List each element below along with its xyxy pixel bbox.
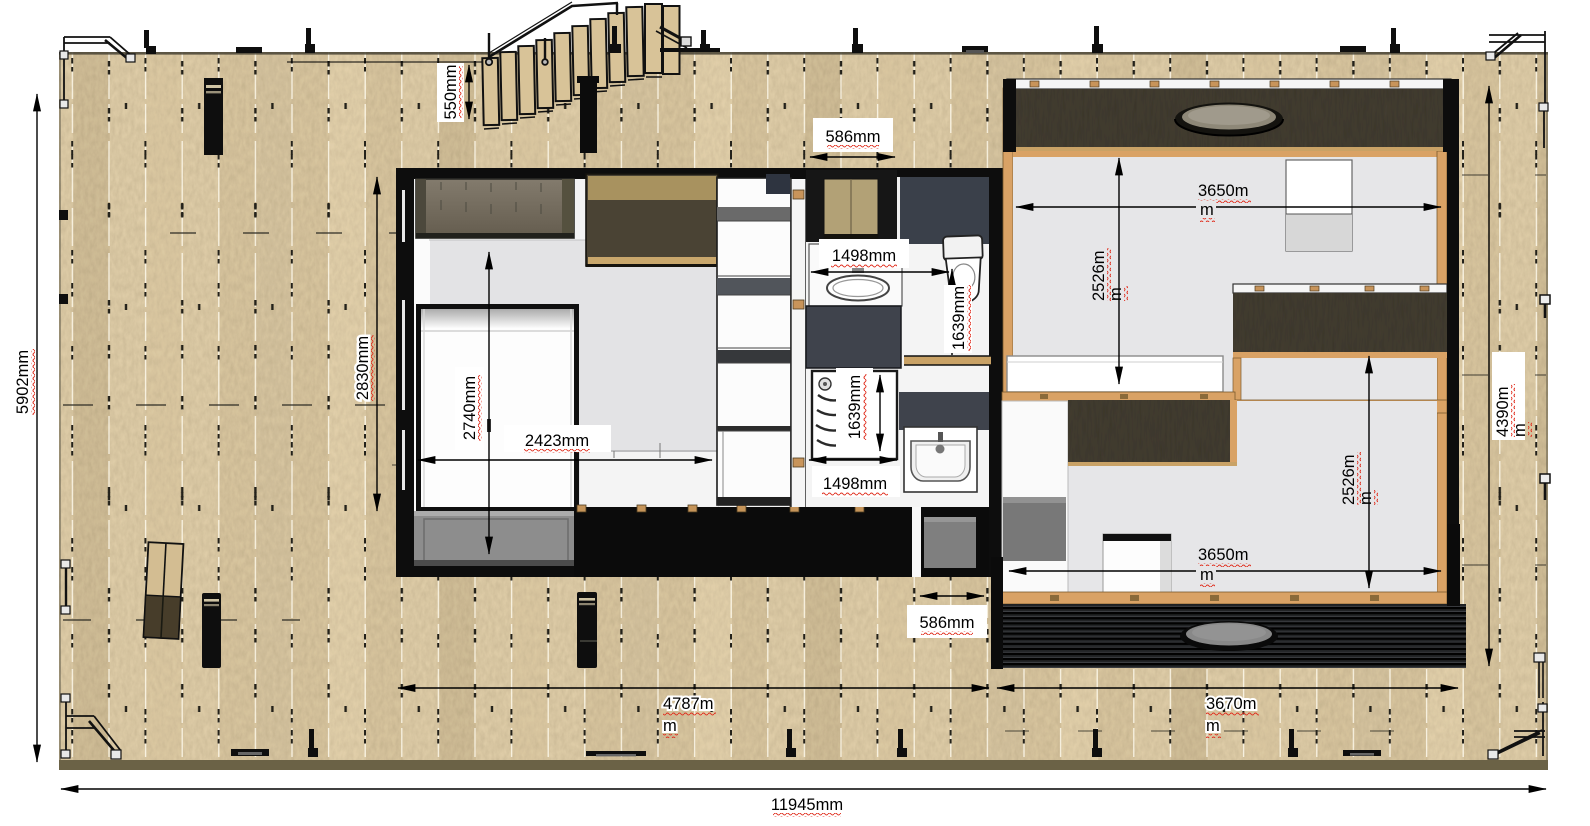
svg-text:m: m [1511,423,1529,437]
svg-text:550mm: 550mm [442,64,460,119]
svg-text:m: m [1200,201,1214,219]
svg-text:m: m [663,717,677,735]
svg-text:3650m: 3650m [1198,182,1248,200]
svg-text:1498mm: 1498mm [832,247,896,265]
svg-text:2423mm: 2423mm [525,432,589,450]
svg-text:3670m: 3670m [1206,695,1256,713]
svg-text:2830mm: 2830mm [354,336,372,400]
svg-text:4390m: 4390m [1494,387,1512,437]
svg-text:1639mm: 1639mm [846,375,864,439]
svg-text:2526m: 2526m [1340,455,1358,505]
svg-text:11945mm: 11945mm [771,796,843,814]
svg-text:2526m: 2526m [1090,251,1108,301]
svg-text:1498mm: 1498mm [823,475,887,493]
svg-text:5902mm: 5902mm [14,350,32,414]
svg-text:4787m: 4787m [663,695,713,713]
svg-text:3650m: 3650m [1198,546,1248,564]
svg-text:586mm: 586mm [919,614,974,632]
svg-text:2740mm: 2740mm [461,376,479,440]
svg-text:1639mm: 1639mm [950,286,968,350]
svg-text:m: m [1357,491,1375,505]
svg-text:m: m [1107,287,1125,301]
svg-text:m: m [1200,566,1214,584]
svg-text:586mm: 586mm [825,128,880,146]
svg-text:m: m [1206,717,1220,735]
